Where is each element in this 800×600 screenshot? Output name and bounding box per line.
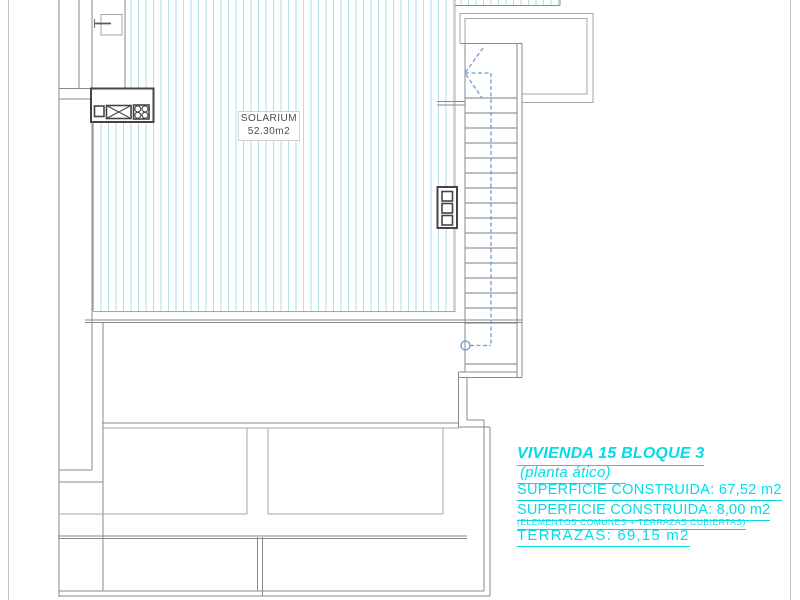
solarium-hatch-area [93,0,561,312]
wall-switch-symbol [94,15,122,36]
built-area-line-1: SUPERFICIE CONSTRUIDA: 67,52 m2 [517,482,782,501]
dwelling-title: VIVIENDA 15 BLOQUE 3 [517,445,704,466]
floor-plan-canvas: SOLARIUM 52.30m2 VIVIENDA 15 BLOQUE 3 (p… [0,0,800,600]
terraces-area-line: TERRAZAS: 69,15 m2 [517,527,690,547]
dwelling-subtitle: (planta ático) [517,464,626,484]
solarium-name: SOLARIUM [239,112,299,125]
lower-terrace-walls [58,372,490,596]
solarium-room-label: SOLARIUM 52.30m2 [238,111,300,141]
electrical-panel-symbol [438,187,458,228]
solarium-area: 52.30m2 [239,125,299,138]
kitchen-counter-symbol [91,89,154,123]
solarium-bottom-wall [85,320,522,323]
upper-roof-outline [460,14,593,103]
